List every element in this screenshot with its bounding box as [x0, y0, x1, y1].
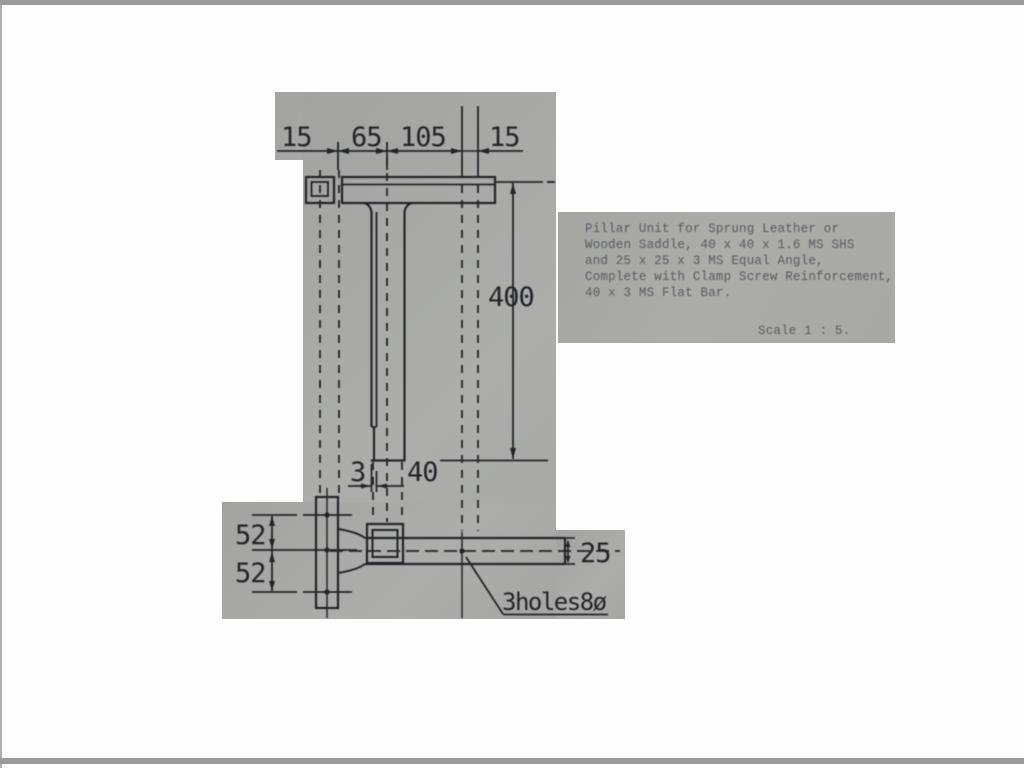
- dim-label-65: 65: [351, 122, 382, 153]
- holes-note-label: 3holes8ø: [502, 588, 607, 616]
- dim-label-52-upper: 52: [235, 520, 266, 551]
- base-flat-bar-vertical: [285, 488, 357, 618]
- dim-label-3: 3: [350, 457, 365, 488]
- dim-label-400: 400: [488, 282, 534, 313]
- title-line-1: Pillar Unit for Sprung Leather or: [585, 222, 839, 236]
- hole-in-bar: [459, 548, 464, 553]
- pillar-elevation-view: 15 65 105 15 400 3 40 52 52 25 3holes8ø: [235, 106, 620, 618]
- height-dimension-400: [440, 182, 555, 461]
- dim-label-25: 25: [580, 538, 611, 569]
- clamp-square-inner: [373, 530, 398, 557]
- weld-fillet-bottom: [338, 564, 365, 573]
- projection-dashed-lines: [320, 158, 478, 531]
- dim-label-15-left: 15: [281, 122, 312, 153]
- hole-bottom: [324, 589, 329, 594]
- title-line-5: 40 x 3 MS Flat Bar.: [585, 286, 731, 300]
- top-saddle-bar: [306, 177, 495, 203]
- hole-top: [324, 512, 329, 517]
- title-line-2: Wooden Saddle, 40 x 40 x 1.6 MS SHS: [585, 238, 855, 252]
- scale-note: Scale 1 : 5.: [758, 324, 850, 338]
- photo-of-engineering-drawing: 15 65 105 15 400 3 40 52 52 25 3holes8ø …: [0, 0, 1024, 768]
- weld-fillet-top: [338, 529, 365, 538]
- pillar-tube: [364, 203, 412, 461]
- title-line-3: and 25 x 25 x 3 MS Equal Angle,: [585, 254, 824, 268]
- title-line-4: Complete with Clamp Screw Reinforcement,: [585, 270, 893, 284]
- dim-label-105: 105: [400, 122, 446, 153]
- dim-label-52-lower: 52: [235, 558, 266, 589]
- hole-middle: [324, 547, 329, 552]
- dim-label-15-right: 15: [489, 122, 520, 153]
- dim-label-40: 40: [407, 457, 438, 488]
- drawing-linework: 15 65 105 15 400 3 40 52 52 25 3holes8ø …: [0, 0, 1024, 768]
- title-block-text: Pillar Unit for Sprung Leather or Wooden…: [585, 222, 893, 338]
